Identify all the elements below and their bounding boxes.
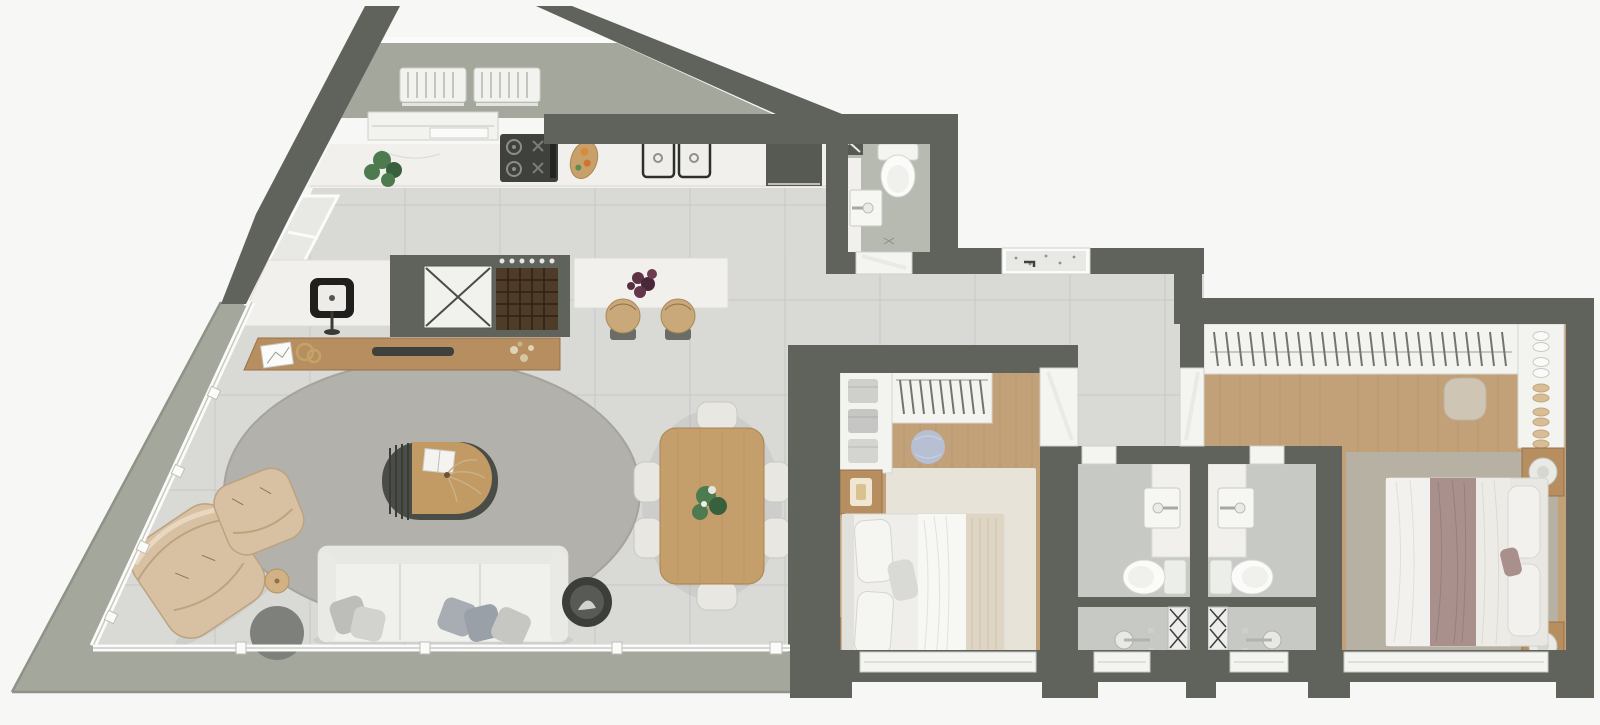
ac-unit (474, 68, 540, 106)
pillow (1508, 486, 1540, 558)
dining-chair (762, 518, 790, 558)
bathroom-social-door (1082, 446, 1116, 464)
bar-stool (661, 299, 695, 340)
dining-chair (634, 518, 662, 558)
shower-glass (1168, 607, 1188, 650)
round-side-table (265, 569, 289, 593)
wall-service-bath-left (826, 114, 848, 274)
shoe-shelf (1518, 324, 1564, 448)
granite-tub (1006, 251, 1086, 271)
bathroom-ensuite-door (1250, 446, 1284, 464)
dining-chair (762, 462, 790, 502)
wall-bedroom1-left (788, 345, 840, 652)
tv (372, 347, 454, 356)
master-closet (1204, 324, 1518, 374)
round-pouf (911, 430, 945, 464)
wall-bathrooms-center (1190, 464, 1208, 650)
folded-clothes (848, 379, 878, 463)
balcony-railing (378, 37, 618, 43)
shower-curb (1078, 597, 1190, 607)
wall-bedroom1-top (788, 345, 1062, 373)
wine-rack (496, 259, 558, 331)
nightstand (840, 470, 882, 514)
blanket (1430, 478, 1476, 646)
enclosure-units (424, 259, 558, 331)
shaft-panel (424, 266, 492, 328)
wall-kitchen-top (544, 114, 958, 144)
wall-bathrooms-right (1316, 446, 1342, 650)
coffee-table (382, 442, 498, 520)
square-pouf (1444, 378, 1486, 420)
wall-master-top (1174, 298, 1594, 324)
master-bed (1386, 478, 1548, 646)
ac-unit (400, 68, 466, 106)
dining-chair (634, 462, 662, 502)
dining-chair (697, 582, 737, 610)
wall-stub (1308, 682, 1350, 698)
kitchen-pass-window (368, 112, 498, 140)
bedroom1-bed (842, 514, 1004, 662)
laundry-niche (1002, 248, 1090, 274)
decor-bowl (562, 577, 612, 627)
shower-glass (1208, 607, 1228, 650)
wall-stub (790, 682, 852, 698)
dining-chair (697, 402, 737, 430)
wall-right-outer (1566, 298, 1594, 688)
shower-curb (1208, 597, 1316, 607)
floor-plan (0, 0, 1600, 725)
toilet-icon (1210, 560, 1273, 594)
floor-plan-stage (0, 0, 1600, 725)
round-coffee-side-table (250, 606, 304, 660)
wall-stub (1186, 682, 1216, 698)
wall-stub (1556, 682, 1594, 698)
sofa (313, 546, 573, 652)
vanity-sink-icon (1218, 488, 1254, 528)
wall-hall-master (1180, 324, 1204, 368)
wall-sink-icon (850, 190, 882, 226)
vanity-sink-icon (1144, 488, 1180, 528)
picture-frame (261, 342, 294, 368)
sideboard (244, 338, 560, 370)
toilet-icon (1123, 560, 1186, 594)
bar-stool (606, 299, 640, 340)
wall-stub (1042, 682, 1098, 698)
